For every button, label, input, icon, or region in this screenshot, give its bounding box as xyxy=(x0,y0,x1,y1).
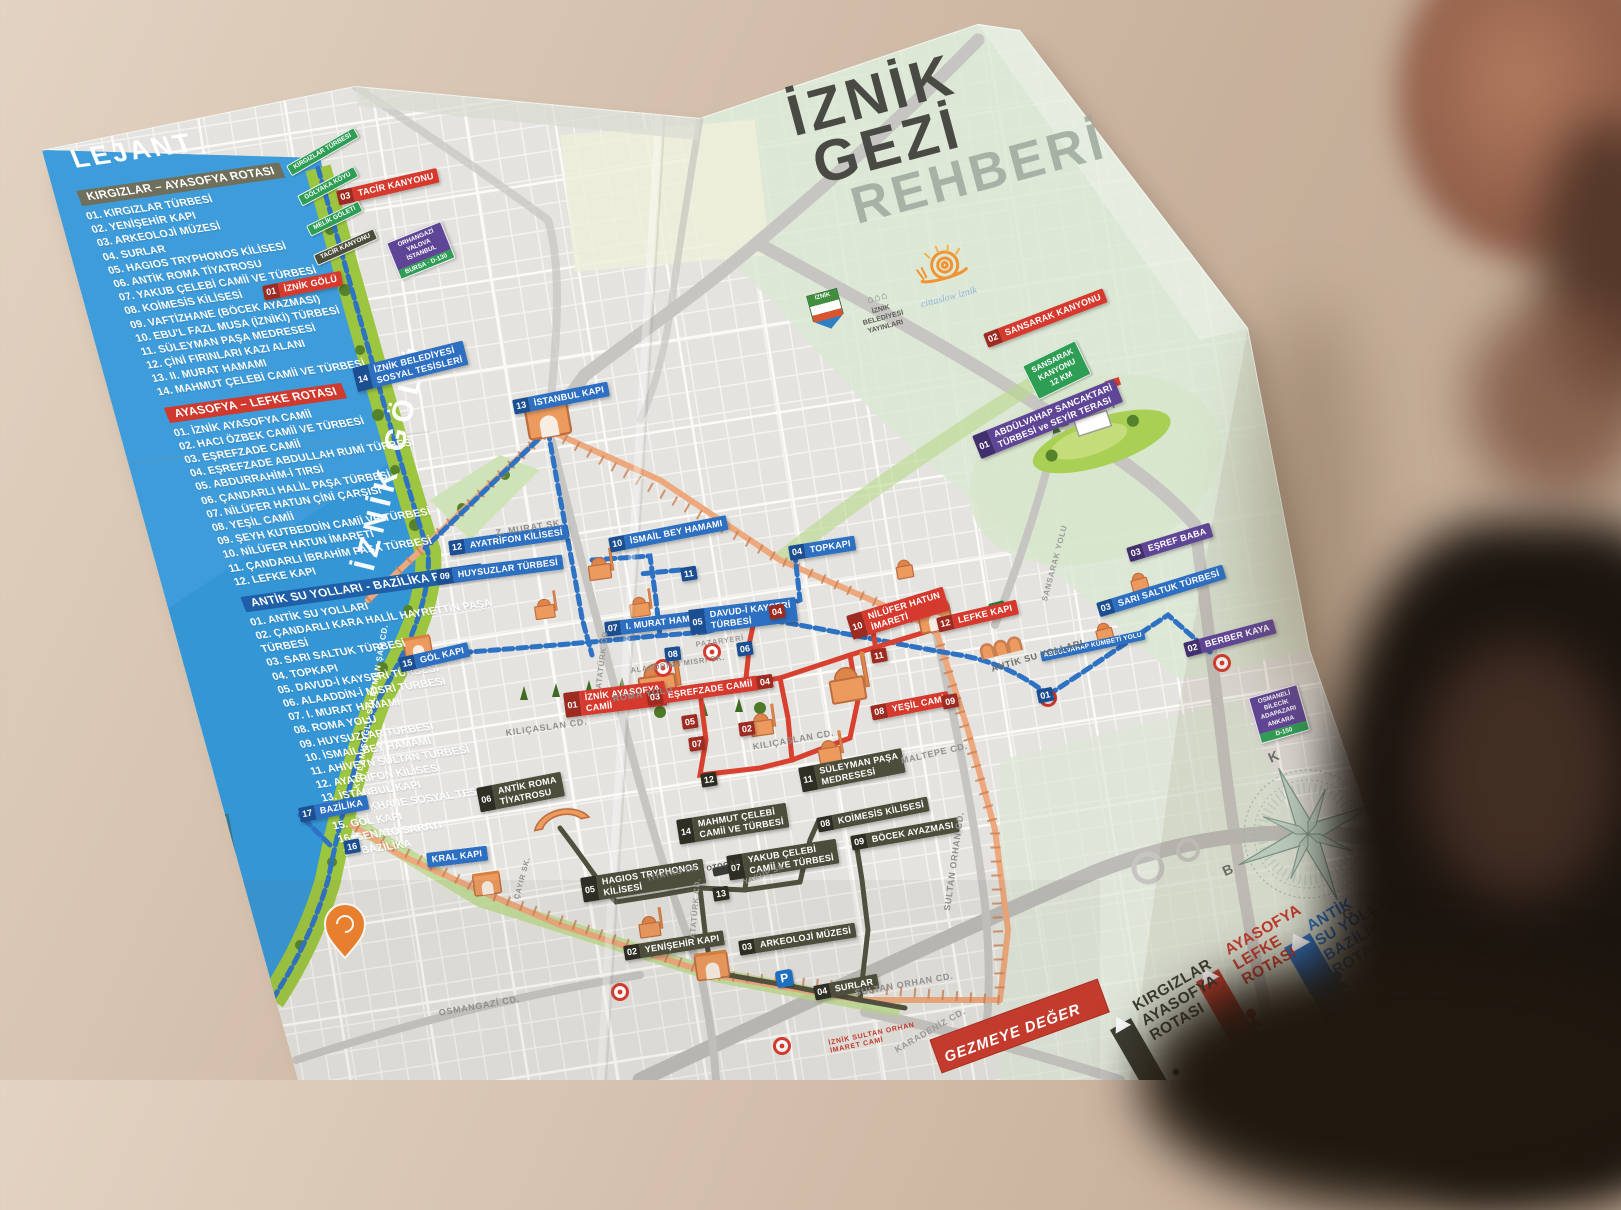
publisher-name: İZNİK BELEDİYESİ YAYINLARI xyxy=(852,273,907,338)
map-badge-number: 07 xyxy=(688,736,706,752)
wall-shadow-blur xyxy=(1255,300,1365,720)
map-badge-number: 11 xyxy=(870,647,888,663)
map-badge-number: 09 xyxy=(941,693,959,710)
parking-icon: P xyxy=(775,969,795,989)
map-badge-number: 06 xyxy=(736,641,754,657)
map-badge-number: 04 xyxy=(768,603,786,619)
map-badge-number: 13 xyxy=(712,885,730,901)
map-badge-number: 02 xyxy=(738,721,756,737)
map-badge-number: 04 xyxy=(756,674,774,690)
map-badge-number: 16 xyxy=(343,838,361,855)
photo-of-map-scene: { "title": {"l1":"İZNİK","l2":"GEZİ","l3… xyxy=(0,0,1621,1080)
map-badge-number: 11 xyxy=(680,566,698,582)
reader-arm-blur xyxy=(1420,640,1620,900)
map-badge-number: 05 xyxy=(681,714,699,730)
map-badge-number: 12 xyxy=(700,771,718,787)
